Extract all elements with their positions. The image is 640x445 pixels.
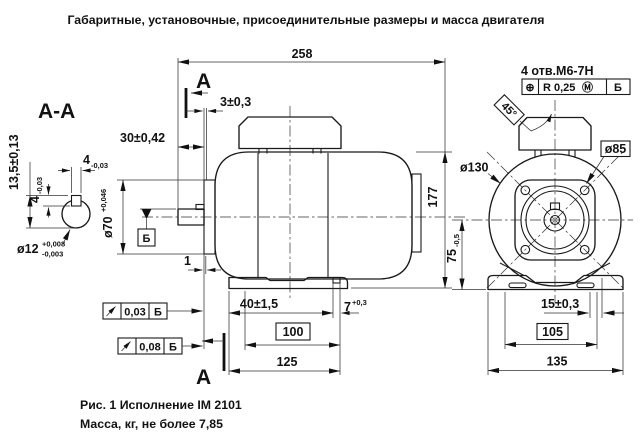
dim-base-length: 125 [229, 355, 340, 371]
position-icon: ⊕ [525, 82, 534, 94]
caption-figure: Рис. 1 Исполнение IM 2101 [80, 398, 242, 412]
runout-frame-2: 0,08 Б [118, 338, 203, 354]
runout-icon [107, 307, 116, 317]
svg-text:ø130: ø130 [460, 161, 489, 175]
svg-text:3±0,3: 3±0,3 [220, 95, 251, 109]
caption-mass: Масса, кг, не более 7,85 [80, 417, 223, 431]
svg-text:+0,046: +0,046 [99, 189, 108, 212]
side-view: Б 258 А 3±0,3 30±0,42 [99, 47, 468, 389]
svg-text:30±0,42: 30±0,42 [120, 131, 165, 145]
svg-text:-0,003: -0,003 [42, 250, 63, 259]
position-tolerance-frame: ⊕ R 0,25 Ⓜ Б [522, 79, 630, 95]
svg-text:ø70: ø70 [101, 216, 115, 238]
foot-slot-front [577, 283, 594, 288]
drawing-title: Габаритные, установочные, присоединитель… [68, 13, 545, 27]
drawing-canvas: Габаритные, установочные, присоединитель… [0, 0, 640, 445]
svg-text:Б: Б [169, 342, 177, 354]
dim-bolt-circle: ø85 [587, 141, 631, 184]
svg-text:0,03: 0,03 [124, 307, 145, 319]
aa-label: А-А [38, 100, 75, 123]
dim-face-offset: 1 [184, 254, 221, 349]
svg-text:Б: Б [143, 233, 151, 245]
dim-overall-length: 258 [178, 47, 445, 209]
caption: Рис. 1 Исполнение IM 2101 Масса, кг, не … [80, 398, 242, 431]
svg-text:R 0,25: R 0,25 [543, 82, 575, 94]
section-view-aa: А-А 13,5±0,13 4 -0,03 4 -0,03 [7, 100, 108, 259]
section-mark-bottom: А [196, 333, 224, 389]
svg-text:4: 4 [83, 153, 90, 167]
dim-shaft-length: 30±0,42 [120, 131, 204, 147]
end-view: 4 отв.М6-7Н ⊕ R 0,25 Ⓜ Б 45° ø130 [445, 64, 633, 375]
svg-text:100: 100 [283, 325, 304, 339]
svg-text:15±0,3: 15±0,3 [541, 297, 579, 311]
dim-shaft-diameter: ø12 +0,008 -0,003 [17, 230, 70, 259]
svg-text:7: 7 [344, 300, 351, 314]
runout-icon [122, 342, 131, 352]
svg-text:105: 105 [542, 325, 563, 339]
dim-key-height: 4 -0,03 [28, 177, 70, 218]
section-label-bottom: А [196, 366, 211, 389]
drawing-page: Габаритные, установочные, присоединитель… [0, 0, 640, 445]
svg-text:ø85: ø85 [605, 142, 627, 156]
svg-text:75: 75 [445, 249, 459, 263]
svg-text:+0,3: +0,3 [352, 298, 367, 307]
motor-body-outline [215, 152, 412, 279]
svg-text:177: 177 [426, 187, 440, 208]
dim-overall-height: 177 [351, 152, 452, 288]
svg-text:Б: Б [154, 307, 162, 319]
dim-axis-height: 75 -0,5 [445, 220, 486, 290]
svg-text:+0,008: +0,008 [42, 240, 65, 249]
svg-text:40±1,5: 40±1,5 [240, 297, 278, 311]
svg-text:Б: Б [614, 82, 622, 94]
svg-text:-0,5: -0,5 [452, 234, 461, 247]
angle-label-45: 45° [494, 95, 551, 131]
svg-text:4: 4 [28, 196, 42, 203]
material-condition-icon: Ⓜ [582, 80, 593, 94]
svg-text:125: 125 [277, 355, 298, 369]
section-label-top: А [196, 70, 211, 93]
dim-key-width: 4 -0,03 [58, 153, 108, 193]
dim-flange-diameter: ø130 [460, 161, 501, 184]
rear-ridge [412, 174, 421, 252]
svg-text:0,08: 0,08 [139, 342, 160, 354]
svg-text:135: 135 [547, 355, 568, 369]
dim-foot-slot: 7 +0,3 [342, 298, 367, 314]
svg-text:1: 1 [184, 254, 191, 268]
runout-frame-1: 0,03 Б [103, 303, 203, 319]
svg-text:13,5±0,13: 13,5±0,13 [7, 134, 21, 190]
datum-flag-b: Б [138, 209, 176, 246]
svg-text:258: 258 [292, 47, 313, 61]
svg-text:-0,03: -0,03 [91, 161, 108, 170]
svg-text:ø12: ø12 [17, 242, 39, 256]
foot-slot-front [509, 283, 526, 288]
svg-text:45°: 45° [499, 100, 519, 120]
svg-text:-0,03: -0,03 [35, 177, 44, 194]
dim-foot-hole-offset: 15±0,3 [541, 278, 624, 318]
keyway-key-bg [72, 196, 82, 207]
holes-note: 4 отв.М6-7Н [521, 64, 594, 78]
